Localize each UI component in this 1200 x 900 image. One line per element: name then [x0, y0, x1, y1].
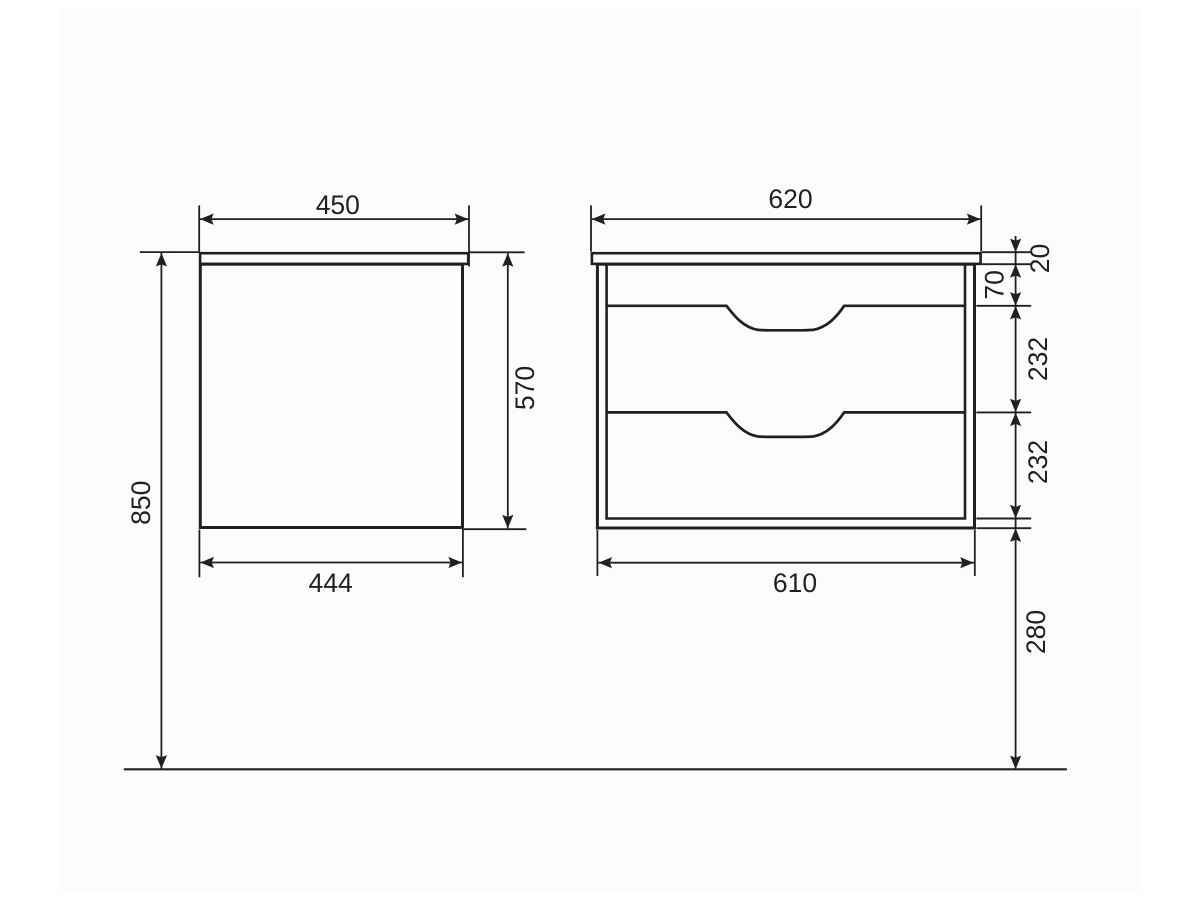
svg-text:280: 280 — [1021, 610, 1051, 654]
svg-text:232: 232 — [1023, 440, 1053, 484]
svg-text:70: 70 — [980, 270, 1010, 299]
svg-text:850: 850 — [126, 481, 156, 525]
svg-text:444: 444 — [308, 568, 352, 598]
svg-text:232: 232 — [1023, 337, 1053, 381]
svg-text:610: 610 — [773, 568, 817, 598]
svg-text:450: 450 — [316, 190, 360, 220]
svg-text:20: 20 — [1025, 244, 1055, 273]
svg-text:570: 570 — [510, 366, 540, 410]
svg-text:620: 620 — [768, 184, 812, 214]
